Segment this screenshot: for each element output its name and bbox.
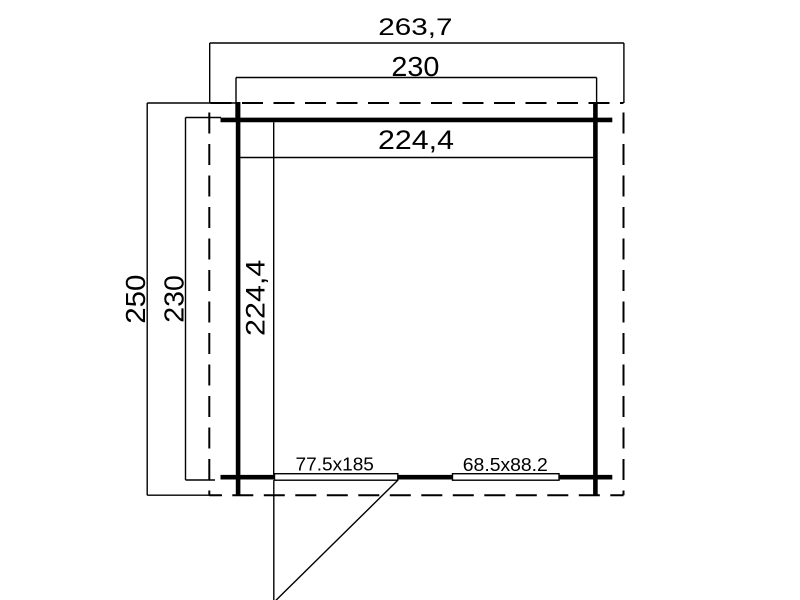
svg-text:263,7: 263,7	[378, 14, 452, 41]
svg-text:224,4: 224,4	[378, 125, 454, 155]
svg-text:68.5x88.2: 68.5x88.2	[463, 455, 548, 476]
svg-text:250: 250	[120, 275, 151, 324]
svg-text:77.5x185: 77.5x185	[296, 454, 374, 475]
svg-text:224,4: 224,4	[240, 259, 270, 335]
svg-text:230: 230	[391, 51, 439, 82]
svg-text:230: 230	[158, 275, 189, 323]
